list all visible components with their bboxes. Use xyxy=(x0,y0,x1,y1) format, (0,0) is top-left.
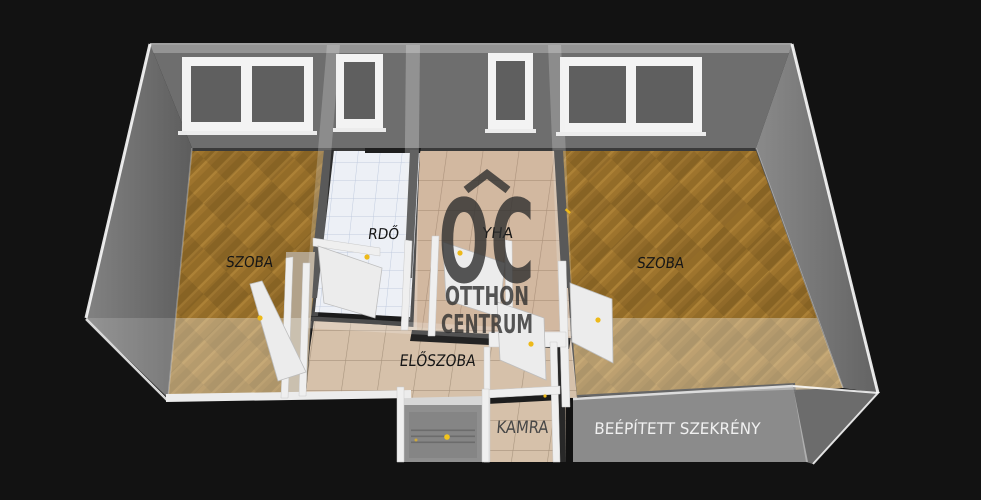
window-sill xyxy=(556,132,706,136)
entry-door-leaf xyxy=(409,412,477,458)
entry-door xyxy=(409,412,477,458)
door-handle xyxy=(528,341,533,346)
entry-door-groove xyxy=(411,442,475,444)
window-sill xyxy=(333,128,386,132)
label-bathroom: RDŐ xyxy=(367,223,400,243)
floorplan-svg: SZOBA RDŐ YHA SZOBA ELŐSZOBA KAMRA BEÉPÍ… xyxy=(0,0,981,500)
watermark: OC OTTHON CENTRUM xyxy=(439,174,536,340)
entry-door-keyhole xyxy=(415,439,418,442)
label-built-in-closet: BEÉPÍTETT SZEKRÉNY xyxy=(594,419,761,438)
entry-door-groove xyxy=(411,436,475,438)
window-room-right xyxy=(556,57,706,136)
door-handle xyxy=(364,254,369,259)
entry-door-handle xyxy=(444,434,450,440)
entry-door-groove xyxy=(411,430,475,432)
window-pane xyxy=(191,66,241,122)
door-handle-glint xyxy=(543,394,546,397)
window-pane xyxy=(252,66,304,122)
window-pane xyxy=(569,66,626,123)
window-room-left xyxy=(178,57,317,135)
window-pane xyxy=(636,66,693,123)
window-bathroom xyxy=(333,54,386,132)
window-sill xyxy=(178,131,317,135)
door-handle xyxy=(595,317,600,322)
window-pane xyxy=(496,61,525,120)
frame-entry-right xyxy=(482,389,489,462)
window-kitchen xyxy=(485,53,536,133)
window-pane xyxy=(344,62,375,119)
watermark-line2: CENTRUM xyxy=(441,310,533,340)
label-hallway: ELŐSZOBA xyxy=(399,350,477,370)
frame-entry-left xyxy=(397,387,404,462)
window-sill xyxy=(485,129,536,133)
watermark-line1: OTTHON xyxy=(445,282,529,312)
back-wall-top xyxy=(150,44,792,53)
label-room-left: SZOBA xyxy=(225,253,275,271)
door-handle xyxy=(257,315,262,320)
floorplan-render: SZOBA RDŐ YHA SZOBA ELŐSZOBA KAMRA BEÉPÍ… xyxy=(0,0,981,500)
label-room-right: SZOBA xyxy=(636,254,686,272)
label-pantry: KAMRA xyxy=(496,418,550,438)
